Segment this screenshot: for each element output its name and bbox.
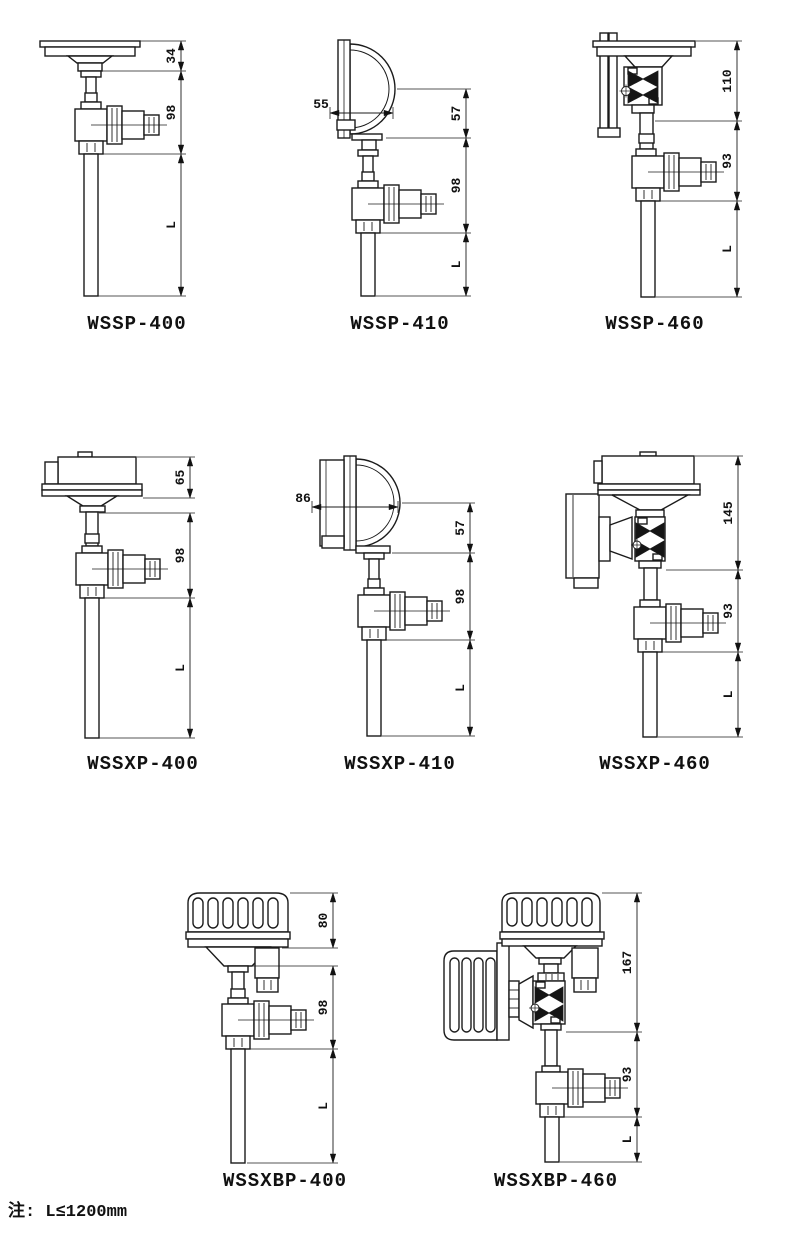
figure-wssxbp-400: 8098L <box>186 893 338 1163</box>
figure-label-wssxbp-460: WSSXBP-460 <box>494 1170 618 1192</box>
figure-wssxp-460: 14593L <box>566 452 743 737</box>
figure-wssxbp-460: 16793L <box>444 893 642 1162</box>
dim-label: 93 <box>720 153 735 169</box>
dim-label: L <box>449 260 464 268</box>
dim-label: 80 <box>316 913 331 929</box>
figure-label-wssxp-410: WSSXP-410 <box>344 753 456 775</box>
dim-label: L <box>620 1135 635 1143</box>
dim-label: 55 <box>313 97 329 112</box>
dim-label: 98 <box>316 1000 331 1016</box>
dim-label: 34 <box>164 48 179 64</box>
diagram-page: 3498L555798L11093L6598L865798L14593L8098… <box>0 0 790 1234</box>
dim-label: 98 <box>173 548 188 564</box>
diagram-canvas: 3498L555798L11093L6598L865798L14593L8098… <box>0 0 790 1234</box>
figure-label-wssxbp-400: WSSXBP-400 <box>223 1170 347 1192</box>
dim-label: 57 <box>453 520 468 536</box>
figure-wssp-460: 11093L <box>593 33 742 297</box>
dim-label: 98 <box>164 105 179 121</box>
dim-label: 98 <box>453 589 468 605</box>
figure-label-wssp-410: WSSP-410 <box>350 313 449 335</box>
dim-label: L <box>453 684 468 692</box>
note-length-limit: 注: L≤1200mm <box>8 1196 127 1222</box>
figure-wssxp-400: 6598L <box>42 452 195 738</box>
figure-label-wssp-460: WSSP-460 <box>605 313 704 335</box>
dim-label: 65 <box>173 470 188 486</box>
dim-label: 93 <box>620 1067 635 1083</box>
dim-label: 57 <box>449 106 464 122</box>
dim-label: 167 <box>620 951 635 974</box>
dim-label: 145 <box>721 501 736 525</box>
dim-label: 110 <box>720 69 735 93</box>
dim-label: L <box>173 664 188 672</box>
figure-label-wssxp-400: WSSXP-400 <box>87 753 199 775</box>
dim-label: L <box>316 1102 331 1110</box>
dim-label: 98 <box>449 178 464 194</box>
dim-label: L <box>720 245 735 253</box>
figure-wssp-410: 555798L <box>313 40 471 296</box>
dim-label: L <box>164 221 179 229</box>
figure-wssxp-410: 865798L <box>295 456 475 736</box>
figure-wssp-400: 3498L <box>40 41 186 296</box>
dim-label: 93 <box>721 603 736 619</box>
figure-label-wssxp-460: WSSXP-460 <box>599 753 711 775</box>
dim-label: 86 <box>295 491 311 506</box>
figure-label-wssp-400: WSSP-400 <box>87 313 186 335</box>
dim-label: L <box>721 690 736 698</box>
